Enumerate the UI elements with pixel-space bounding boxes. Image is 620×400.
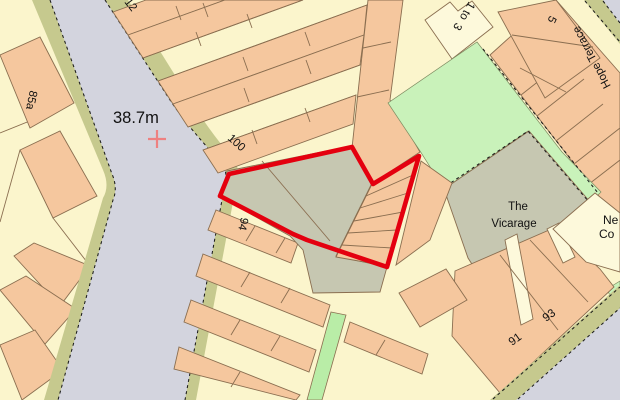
partial-label-line1: Ne (603, 213, 619, 227)
vicarage-label-line1: The (508, 201, 528, 213)
spot-height-label: 38.7m (113, 109, 159, 127)
map-canvas[interactable]: 38.7m 12 100 85a 94 1 to 3 5 Hope Terrac… (0, 0, 620, 400)
map-viewport: 38.7m 12 100 85a 94 1 to 3 5 Hope Terrac… (0, 0, 620, 400)
vicarage-label-line2: Vicarage (491, 218, 536, 230)
partial-label-line2: Co (599, 227, 615, 241)
